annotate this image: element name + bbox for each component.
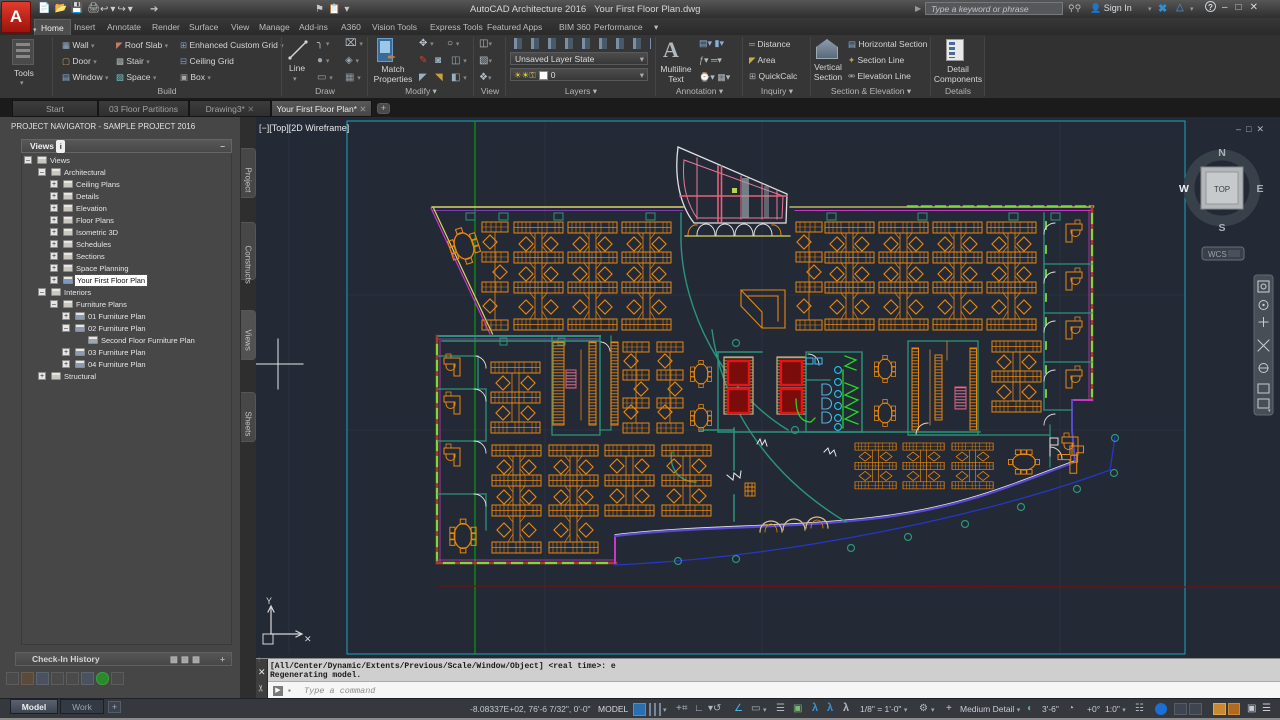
svg-text:N: N bbox=[1218, 147, 1226, 159]
svg-text:W: W bbox=[1179, 183, 1189, 195]
svg-text:WCS: WCS bbox=[1208, 250, 1227, 259]
svg-text:E: E bbox=[1256, 183, 1263, 195]
svg-text:✕: ✕ bbox=[304, 634, 312, 644]
svg-text:TOP: TOP bbox=[1214, 185, 1230, 194]
svg-text:[−][Top][2D Wireframe]: [−][Top][2D Wireframe] bbox=[259, 123, 349, 133]
svg-text:Y: Y bbox=[266, 596, 272, 606]
svg-text:– □ ✕: – □ ✕ bbox=[1236, 124, 1264, 134]
svg-text:S: S bbox=[1218, 222, 1225, 234]
